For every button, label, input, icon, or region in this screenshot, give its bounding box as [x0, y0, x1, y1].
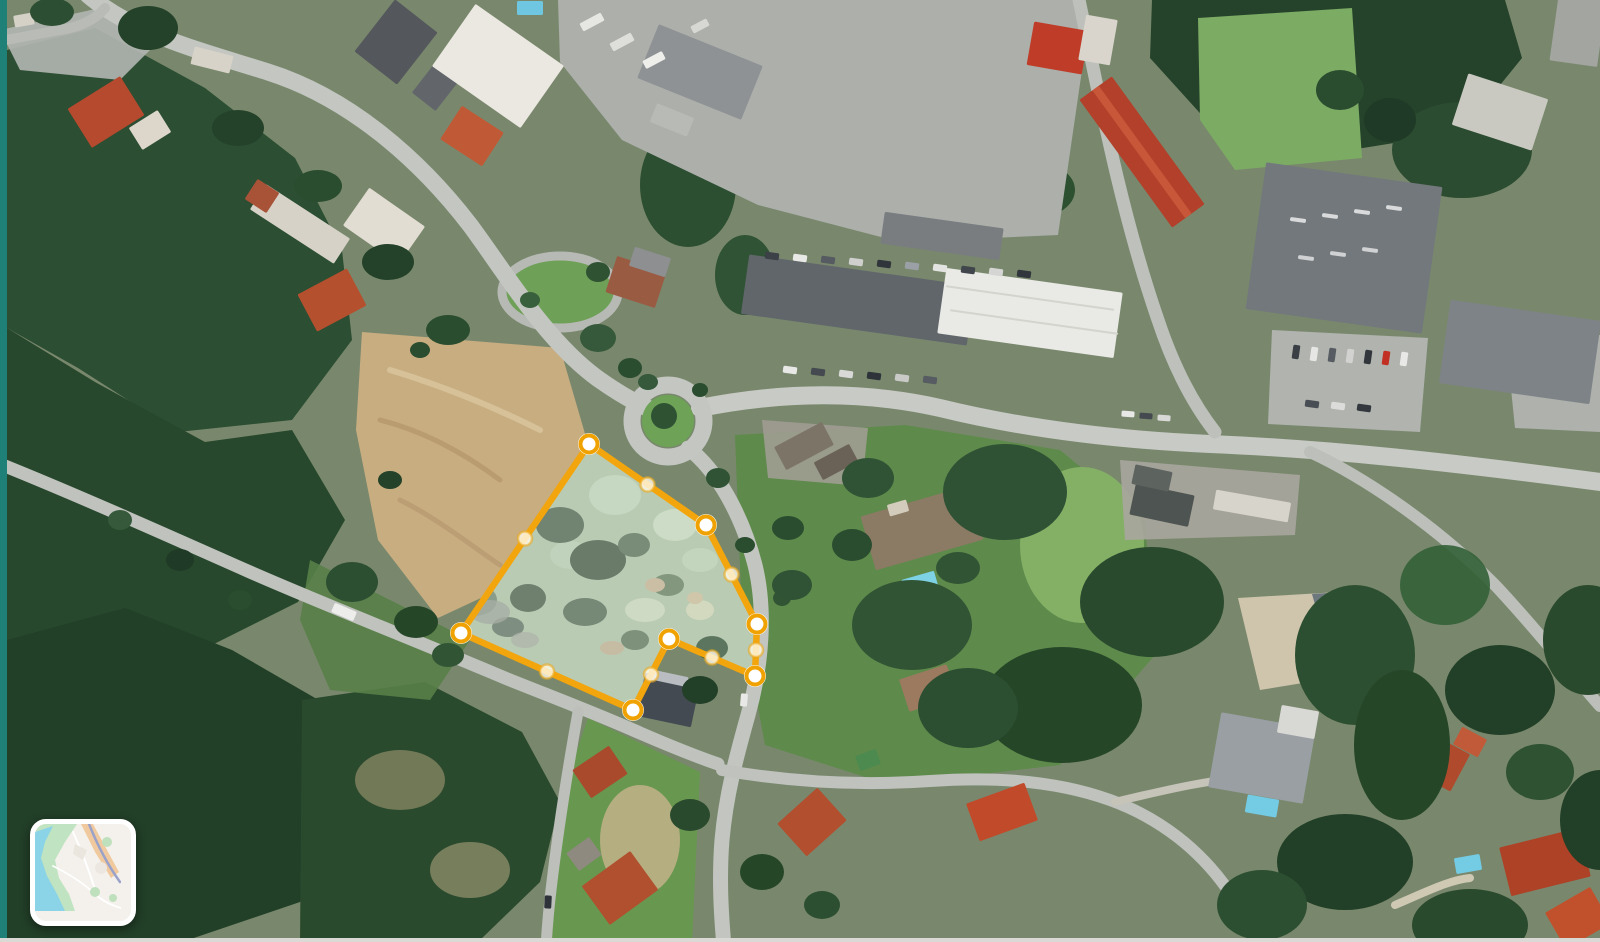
bottom-edge-strip	[0, 938, 1600, 942]
parcel-midpoint-handle[interactable]	[641, 478, 655, 492]
parcel-midpoint-handle[interactable]	[749, 643, 763, 657]
map-viewport[interactable]	[0, 0, 1600, 942]
parcel-vertex-handle[interactable]	[578, 433, 600, 455]
minimap[interactable]	[30, 819, 136, 926]
parcel-vertex-handle[interactable]	[658, 628, 680, 650]
parcel-midpoint-handle[interactable]	[540, 665, 554, 679]
parcel-midpoint-handle[interactable]	[518, 532, 532, 546]
left-edge-strip	[0, 0, 7, 942]
parcel-vertex-handle[interactable]	[622, 699, 644, 721]
parcel-midpoint-handle[interactable]	[705, 651, 719, 665]
parcel-midpoint-handle[interactable]	[644, 668, 658, 682]
parcel-vertex-handle[interactable]	[746, 613, 768, 635]
satellite-map-canvas[interactable]	[0, 0, 1600, 942]
parcel-vertex-handle[interactable]	[450, 622, 472, 644]
minimap-canvas	[35, 824, 121, 911]
parcel-vertex-handle[interactable]	[695, 514, 717, 536]
parcel-vertex-handle[interactable]	[744, 665, 766, 687]
parcel-midpoint-handle[interactable]	[725, 568, 739, 582]
